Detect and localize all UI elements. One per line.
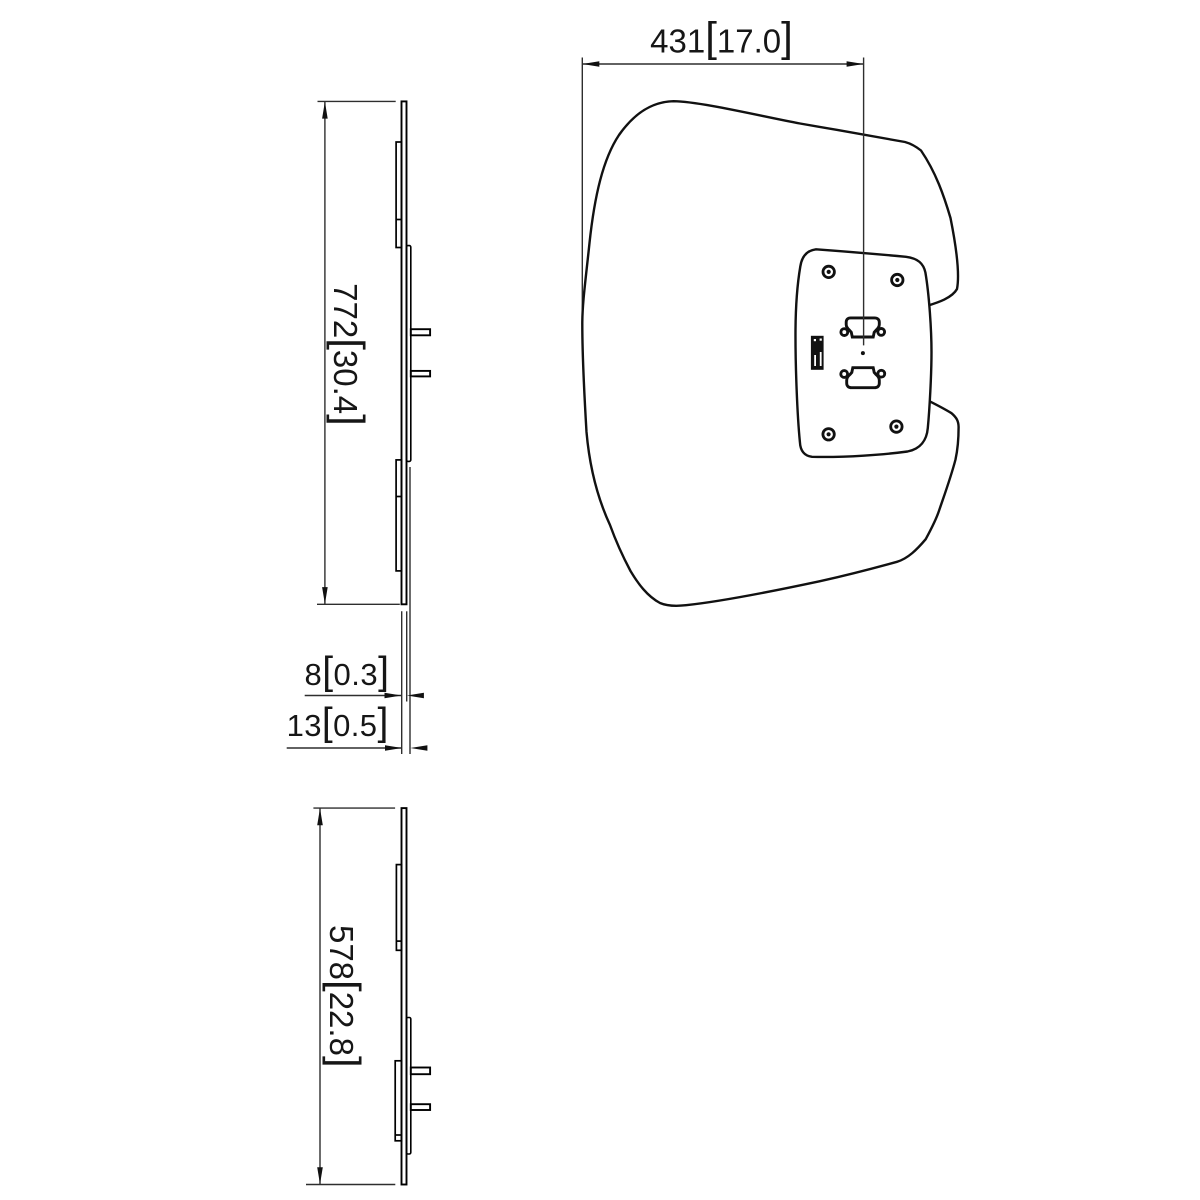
svg-text:8[0.3]: 8[0.3] [304,650,389,693]
svg-text:431[17.0]: 431[17.0] [650,14,793,61]
svg-text:13[0.5]: 13[0.5] [287,701,389,744]
svg-text:772[30.4]: 772[30.4] [326,283,373,426]
svg-text:578[22.8]: 578[22.8] [322,925,369,1068]
